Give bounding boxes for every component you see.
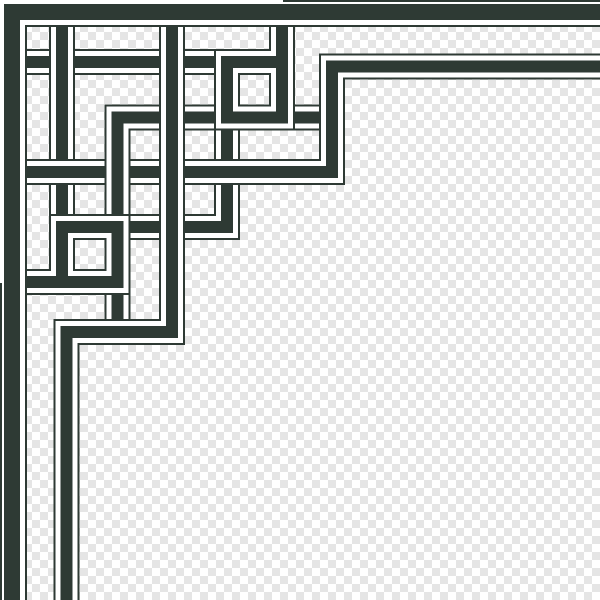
outer-border-ribbon-core (12, 12, 600, 600)
outer-border-ribbon-outline (12, 12, 600, 600)
transparency-checkerboard (0, 0, 600, 600)
outer-border-ribbon-gap (12, 12, 600, 600)
outer-border-ribbon (12, 12, 600, 600)
corner-knot-ornament (0, 0, 600, 600)
